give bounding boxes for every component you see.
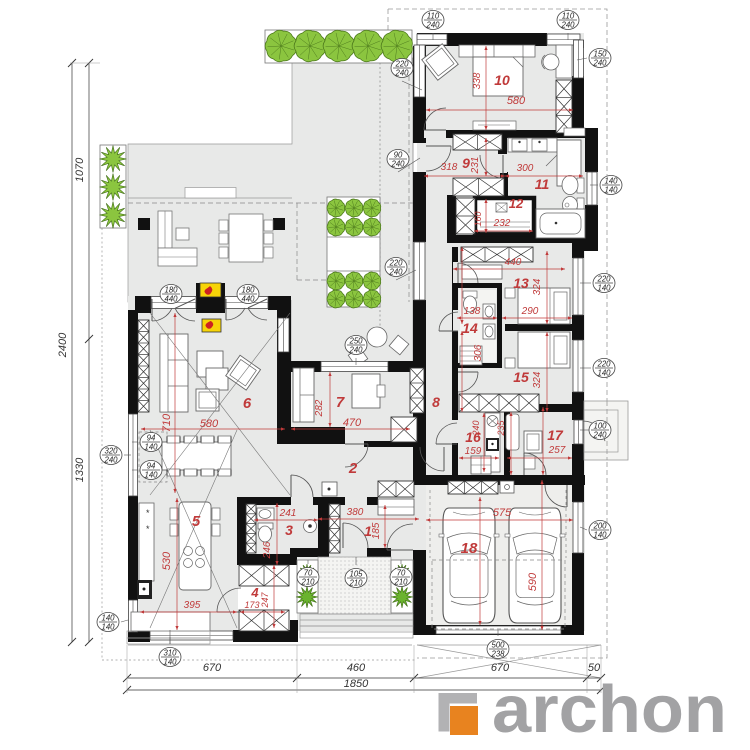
svg-text:580: 580 [200,418,219,430]
svg-text:140: 140 [163,658,177,667]
svg-text:140: 140 [144,471,158,480]
svg-text:140: 140 [604,177,618,186]
svg-text:12: 12 [509,196,524,211]
svg-text:160: 160 [473,211,483,226]
svg-text:173: 173 [244,600,259,610]
svg-text:318: 318 [441,162,458,173]
svg-text:238: 238 [490,650,505,659]
svg-text:180: 180 [241,286,255,295]
svg-text:10: 10 [494,72,510,88]
svg-text:440: 440 [164,295,178,304]
svg-text:14: 14 [462,320,478,336]
svg-text:220: 220 [394,60,409,69]
svg-text:231: 231 [470,157,481,175]
svg-text:*: * [146,524,150,534]
svg-text:105: 105 [349,570,363,579]
svg-text:1330: 1330 [74,457,86,482]
svg-text:110: 110 [562,12,575,21]
svg-text:500: 500 [491,641,505,650]
svg-text:247: 247 [260,592,270,609]
svg-text:archon: archon [492,672,727,747]
svg-text:240: 240 [394,69,409,78]
svg-text:320: 320 [104,447,118,456]
svg-text:440: 440 [505,257,522,268]
svg-text:200: 200 [592,522,607,531]
svg-text:210: 210 [348,579,363,588]
svg-text:338: 338 [472,72,483,89]
svg-text:3: 3 [285,522,293,538]
svg-text:220: 220 [388,259,403,268]
svg-text:94: 94 [147,462,156,471]
svg-text:306: 306 [473,344,484,361]
svg-text:140: 140 [144,443,158,452]
svg-text:380: 380 [347,507,364,518]
svg-text:13: 13 [513,275,529,291]
svg-text:575: 575 [493,507,512,519]
svg-text:110: 110 [427,12,440,21]
svg-text:590: 590 [527,572,539,591]
svg-text:1850: 1850 [344,678,369,690]
svg-text:240: 240 [592,431,607,440]
svg-text:2400: 2400 [57,332,69,358]
svg-text:4: 4 [250,585,259,600]
svg-text:138: 138 [464,306,481,317]
svg-text:246: 246 [262,541,273,559]
svg-text:7: 7 [336,394,345,411]
svg-text:250: 250 [348,337,363,346]
svg-text:324: 324 [532,371,543,388]
svg-text:185: 185 [371,522,382,539]
svg-text:18: 18 [461,540,478,557]
svg-text:470: 470 [343,417,362,429]
svg-text:8: 8 [432,394,440,410]
svg-text:150: 150 [593,50,607,59]
svg-text:300: 300 [517,163,534,174]
svg-text:310: 310 [163,649,177,658]
svg-text:94: 94 [147,434,156,443]
svg-text:11: 11 [535,176,550,192]
svg-text:257: 257 [548,445,566,456]
svg-text:5: 5 [192,513,201,530]
svg-text:395: 395 [184,600,201,611]
svg-text:440: 440 [241,295,255,304]
svg-text:240: 240 [592,59,607,68]
svg-text:140: 140 [593,531,607,540]
svg-text:140: 140 [101,614,115,623]
svg-text:17: 17 [547,427,564,443]
svg-text:70: 70 [304,569,313,578]
svg-text:140: 140 [597,369,611,378]
svg-text:6: 6 [243,395,252,412]
svg-text:240: 240 [560,21,575,30]
svg-text:220: 220 [596,360,611,369]
svg-text:530: 530 [161,551,173,570]
svg-text:*: * [146,508,150,518]
svg-text:210: 210 [393,578,408,587]
svg-text:140: 140 [101,623,115,632]
svg-text:180: 180 [164,286,178,295]
svg-text:240: 240 [388,268,403,277]
svg-text:290: 290 [521,306,539,317]
svg-text:240: 240 [390,160,405,169]
svg-text:210: 210 [300,578,315,587]
svg-text:70: 70 [397,569,406,578]
svg-text:9: 9 [462,155,470,171]
svg-text:324: 324 [532,278,543,295]
svg-text:670: 670 [203,662,222,674]
svg-text:220: 220 [596,275,611,284]
svg-text:15: 15 [513,369,529,385]
svg-text:282: 282 [314,399,325,417]
svg-text:232: 232 [493,218,511,229]
svg-text:159: 159 [465,446,482,457]
svg-text:460: 460 [347,662,366,674]
svg-text:235: 235 [496,420,506,437]
svg-text:241: 241 [279,508,297,519]
svg-text:240: 240 [425,21,440,30]
svg-text:1070: 1070 [74,157,86,182]
svg-text:90: 90 [394,151,403,160]
svg-text:140: 140 [604,186,618,195]
svg-text:240: 240 [471,420,481,436]
svg-text:2: 2 [348,460,358,477]
svg-text:240: 240 [348,346,363,355]
svg-text:240: 240 [103,456,118,465]
svg-text:100: 100 [593,422,607,431]
svg-text:140: 140 [597,284,611,293]
svg-text:580: 580 [507,95,526,107]
